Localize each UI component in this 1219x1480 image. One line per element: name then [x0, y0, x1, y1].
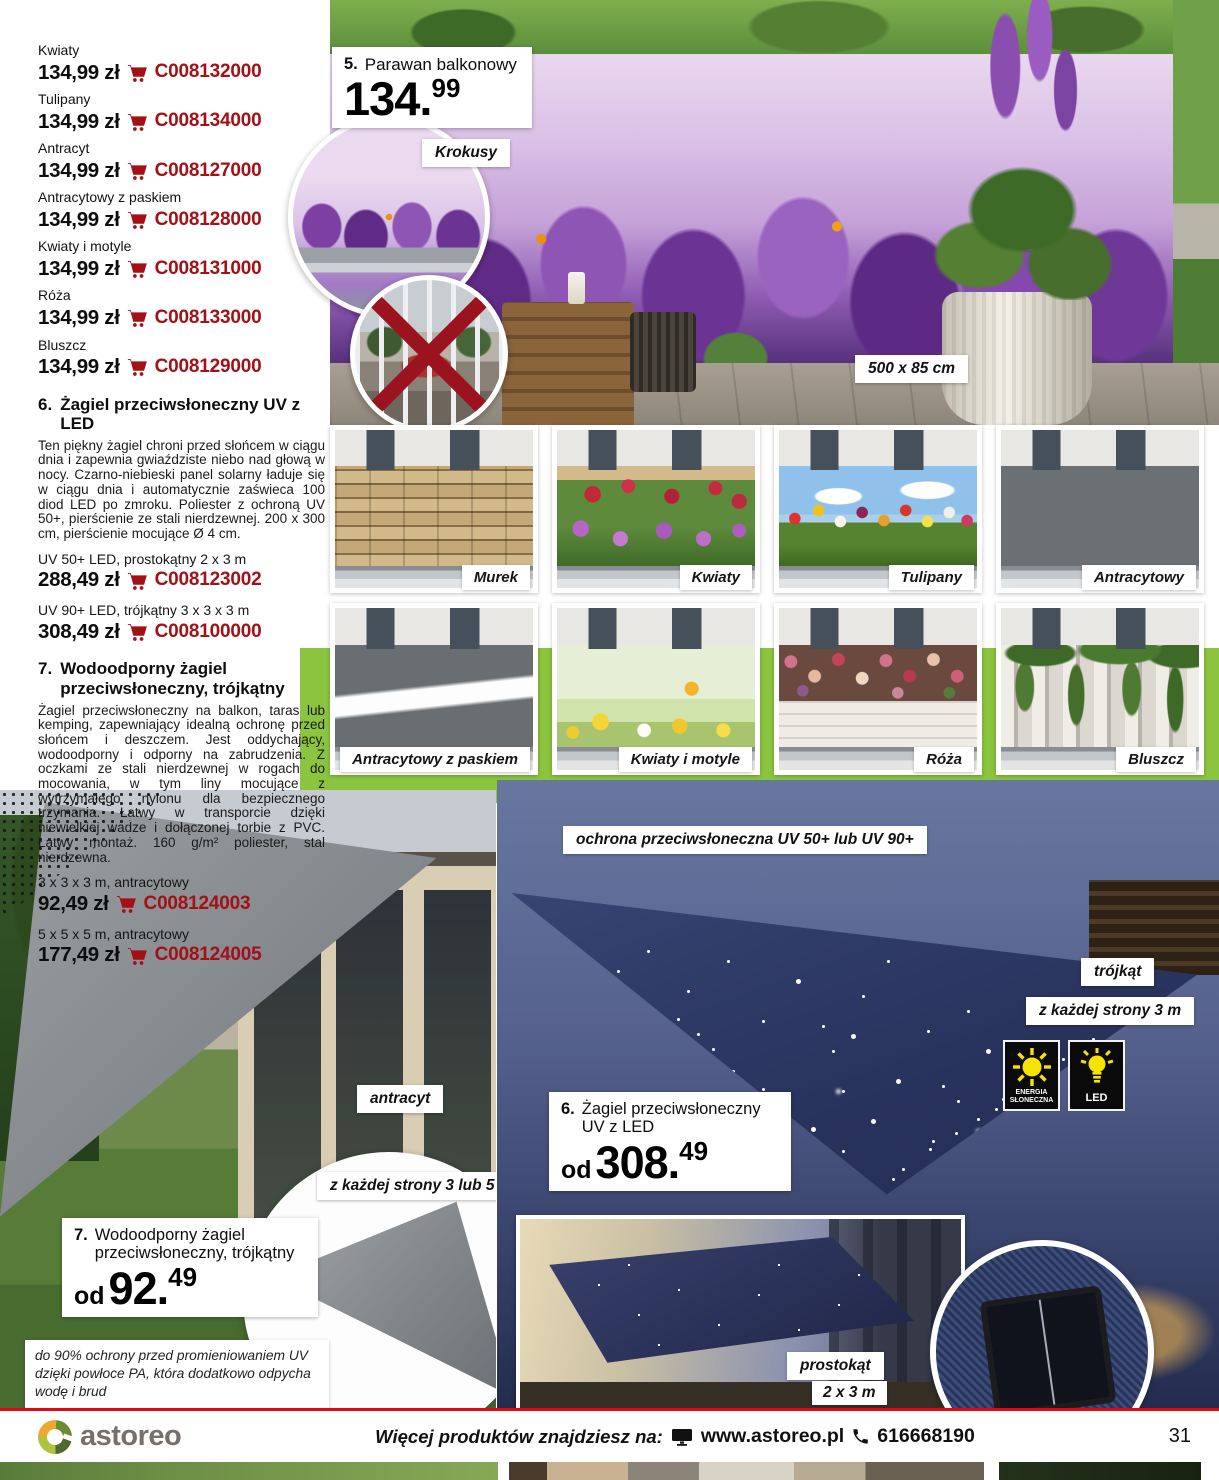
variant-name: UV 50+ LED, prostokątny 2 x 3 m	[38, 551, 325, 568]
motif-roses	[779, 645, 977, 749]
product6-number: 6.	[38, 395, 52, 434]
product7-number: 7.	[38, 659, 52, 698]
inner-photo-rect-sail	[516, 1215, 965, 1408]
cart-icon	[127, 571, 148, 591]
motif-flowers	[557, 466, 755, 567]
price-list-item: Kwiaty i motyle 134,99 zł C008131000	[38, 238, 325, 281]
motif-ivy	[1001, 645, 1199, 749]
product-code: C008134000	[155, 110, 262, 133]
product5-price-box: 5. Parawan balkonowy 134.99	[332, 47, 532, 128]
phone-number: 616668190	[877, 1425, 975, 1448]
product-code: C008127000	[155, 160, 262, 183]
price-list: Kwiaty 134,99 zł C008132000 Tulipany 134…	[38, 42, 325, 380]
product-code: C008100000	[155, 621, 262, 644]
product6-title: 6. Żagiel przeciwsłoneczny UV z LED	[38, 395, 325, 434]
thumbnail-label: Antracytowy	[1082, 565, 1196, 590]
footer-contact: Więcej produktów znajdziesz na: www.asto…	[181, 1425, 1168, 1448]
solar-energy-badge: ENERGIA SŁONECZNA	[1003, 1040, 1060, 1111]
catalog-page: Kwiaty 134,99 zł C008132000 Tulipany 134…	[0, 0, 1219, 1480]
led-badge: LED	[1068, 1040, 1125, 1111]
window-art	[1001, 608, 1199, 649]
hero-art-garden-right	[1173, 0, 1219, 370]
hero-art-basket	[630, 312, 696, 392]
price-list-item: Róża 134,99 zł C008133000	[38, 287, 325, 330]
variant-name: Antracytowy z paskiem	[38, 189, 325, 207]
product-code: C008133000	[155, 307, 262, 330]
motif-anthracite-stripe	[335, 645, 533, 749]
preview-furniture	[509, 1462, 984, 1480]
product6-price: od308.49	[561, 1139, 779, 1185]
window-art	[779, 608, 977, 649]
price: 134,99 zł	[38, 159, 120, 184]
thumbnail-image	[557, 608, 755, 770]
price: 134,99 zł	[38, 257, 120, 282]
shape-label-rectangle: prostokąt	[787, 1352, 884, 1380]
product6-text: 6. Żagiel przeciwsłoneczny UV z LED Ten …	[38, 395, 325, 645]
solar-panel-art	[979, 1285, 1116, 1408]
thumbnail-bluszcz: Bluszcz	[996, 603, 1204, 775]
cart-icon	[127, 357, 148, 377]
variant-name: Kwiaty i motyle	[38, 238, 325, 256]
product-code: C008124005	[155, 944, 262, 967]
hero-art-lupine-plant	[915, 0, 1130, 300]
thumbnail-image	[335, 608, 533, 770]
product6-number: 6.	[561, 1100, 575, 1137]
side-length-label: z każdej strony 3 m	[1026, 997, 1194, 1025]
footer-more-text: Więcej produktów znajdziesz na:	[375, 1426, 663, 1448]
product-code: C008131000	[155, 258, 262, 281]
uv-protection-footnote: do 90% ochrony przed promieniowaniem UV …	[25, 1340, 329, 1408]
price: 134,99 zł	[38, 306, 120, 331]
page-number: 31	[1169, 1425, 1191, 1448]
badge-label: ENERGIA SŁONECZNA	[1005, 1089, 1058, 1105]
product6-description: Ten piękny żagiel chroni przed słońcem w…	[38, 439, 325, 542]
window-art	[1001, 430, 1199, 470]
cart-icon	[127, 622, 148, 642]
monitor-icon	[671, 1428, 693, 1446]
thumbnail-label: Antracytowy z paskiem	[340, 747, 530, 772]
size-label-2x3: 2 x 3 m	[812, 1381, 887, 1405]
thumbnail-image	[779, 608, 977, 770]
badge-label: LED	[1086, 1092, 1108, 1105]
price: 288,49 zł	[38, 568, 120, 593]
product-code: C008129000	[155, 356, 262, 379]
variant-name: Bluszcz	[38, 337, 325, 355]
price: 134,99 zł	[38, 208, 120, 233]
window-art	[335, 608, 533, 649]
product7-title: Wodoodporny żagiel przeciwsłoneczny, tró…	[95, 1226, 306, 1263]
price-list-item: Antracyt 134,99 zł C008127000	[38, 140, 325, 183]
thumbnail-kwiaty-i-motyle: Kwiaty i motyle	[552, 603, 760, 775]
price: 134,99 zł	[38, 110, 120, 135]
motif-meadow-butterflies	[557, 645, 755, 749]
variant-name: Róża	[38, 287, 325, 305]
product5-price: 134.99	[344, 76, 520, 122]
variant-name: Kwiaty	[38, 42, 325, 60]
price: 134,99 zł	[38, 61, 120, 86]
sun-icon	[1012, 1047, 1052, 1087]
thumbnail-image	[1001, 608, 1199, 770]
price-list-item: Antracytowy z paskiem 134,99 zł C0081280…	[38, 189, 325, 232]
variant-name: Tulipany	[38, 91, 325, 109]
motif-anthracite	[1001, 466, 1199, 567]
hero-art-candle	[568, 272, 585, 304]
window-art	[335, 430, 533, 470]
cart-icon	[127, 112, 148, 132]
shape-label-triangle: trójkąt	[1081, 958, 1154, 986]
product-code: C008124003	[144, 893, 251, 916]
thumbnail-murek: Murek	[330, 425, 538, 593]
product7-price-box: 7. Wodoodporny żagiel przeciwsłoneczny, …	[62, 1218, 318, 1317]
brand-name: astoreo	[80, 1420, 181, 1453]
thumbnail-antracytowy: Antracytowy	[996, 425, 1204, 593]
footer: astoreo Więcej produktów znajdziesz na: …	[0, 1411, 1219, 1462]
product6-title: Żagiel przeciwsłoneczny UV z LED	[582, 1100, 779, 1137]
product-code: C008132000	[155, 61, 262, 84]
variant-name: Antracyt	[38, 140, 325, 158]
variant-thumbnail-grid: Murek Kwiaty Tulipany Antracy	[330, 425, 1204, 775]
product-code: C008128000	[155, 209, 262, 232]
left-column: Kwiaty 134,99 zł C008132000 Tulipany 134…	[38, 42, 325, 968]
cart-icon	[127, 210, 148, 230]
cart-icon	[127, 63, 148, 83]
price-list-item: Tulipany 134,99 zł C008134000	[38, 91, 325, 134]
bulb-icon	[1077, 1047, 1117, 1087]
next-page-preview-strip	[0, 1462, 1219, 1480]
astoreo-logo-icon	[38, 1420, 72, 1454]
thumbnail-roza: Róża	[774, 603, 982, 775]
product7-description: Żagiel przeciwsłoneczny na balkon, taras…	[38, 704, 325, 866]
side-length-label: z każdej strony 3 lub 5 m	[317, 1172, 496, 1200]
brand-logo: astoreo	[38, 1420, 181, 1454]
photo-led-sail-night: ochrona przeciwsłoneczna UV 50+ lub UV 9…	[497, 780, 1219, 1408]
led-stars-art	[497, 780, 500, 783]
product7-text: 7. Wodoodporny żagiel przeciwsłoneczny, …	[38, 659, 325, 968]
hero-art-side-table	[502, 302, 634, 425]
preview-dark-green	[999, 1462, 1201, 1480]
thumbnail-label: Tulipany	[889, 565, 974, 590]
variant-name: UV 90+ LED, trójkątny 3 x 3 x 3 m	[38, 602, 325, 619]
feature-badges: ENERGIA SŁONECZNA LED	[1003, 1040, 1125, 1111]
product7-title: 7. Wodoodporny żagiel przeciwsłoneczny, …	[38, 659, 325, 698]
no-screen-crossed-inset	[350, 275, 508, 433]
price: 308,49 zł	[38, 620, 120, 645]
price: 92,49 zł	[38, 892, 109, 917]
preview-grass	[0, 1462, 498, 1480]
thumbnail-label: Kwiaty	[680, 565, 752, 590]
product7-price: od92.49	[74, 1265, 306, 1311]
variant-name: 3 x 3 x 3 m, antracytowy	[38, 874, 325, 891]
website-link[interactable]: www.astoreo.pl	[701, 1425, 844, 1448]
product6-price-box: 6. Żagiel przeciwsłoneczny UV z LED od30…	[549, 1092, 791, 1191]
price: 177,49 zł	[38, 943, 120, 968]
window-art	[557, 608, 755, 649]
size-label: 500 x 85 cm	[855, 355, 968, 383]
hero-photo-crocus-screen: 5. Parawan balkonowy 134.99 Krokusy 500 …	[330, 0, 1219, 425]
thumbnail-label: Kwiaty i motyle	[619, 747, 752, 772]
thumbnail-kwiaty: Kwiaty	[552, 425, 760, 593]
cart-icon	[127, 946, 148, 966]
product-code: C008123002	[155, 569, 262, 592]
inner-art-floor	[520, 1382, 961, 1408]
product7-number: 7.	[74, 1226, 88, 1263]
price-list-item: Kwiaty 134,99 zł C008132000	[38, 42, 325, 85]
phone-icon	[852, 1428, 869, 1445]
cart-icon	[116, 894, 137, 914]
cart-icon	[127, 259, 148, 279]
motif-tulips	[779, 466, 977, 567]
thumbnail-tulipany: Tulipany	[774, 425, 982, 593]
window-art	[779, 430, 977, 470]
uv-protection-label: ochrona przeciwsłoneczna UV 50+ lub UV 9…	[563, 826, 927, 854]
price: 134,99 zł	[38, 355, 120, 380]
variant-name: 5 x 5 x 5 m, antracytowy	[38, 926, 325, 943]
cart-icon	[127, 308, 148, 328]
color-label-antracyt: antracyt	[357, 1085, 443, 1113]
motif-stone-wall	[335, 466, 533, 567]
window-art	[557, 430, 755, 470]
thumbnail-label: Murek	[462, 565, 530, 590]
thumbnail-label: Bluszcz	[1116, 747, 1196, 772]
cart-icon	[127, 161, 148, 181]
thumbnail-label: Róża	[914, 747, 974, 772]
variant-label-krokusy: Krokusy	[422, 139, 510, 167]
price-list-item: Bluszcz 134,99 zł C008129000	[38, 337, 325, 380]
thumbnail-antracytowy-z-paskiem: Antracytowy z paskiem	[330, 603, 538, 775]
